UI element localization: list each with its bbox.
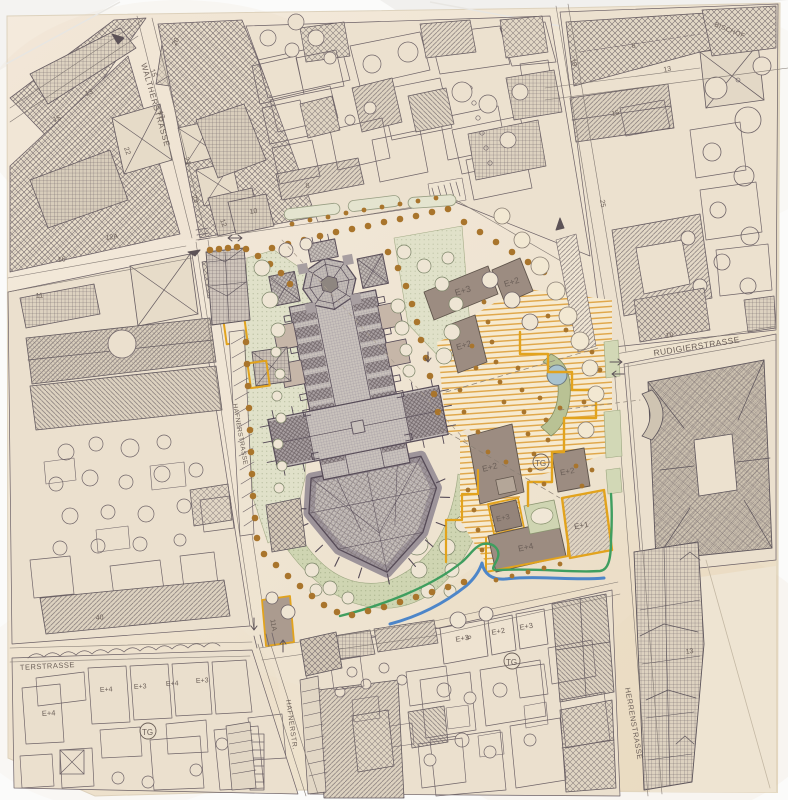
svg-text:40: 40 (95, 614, 104, 622)
svg-text:E+3: E+3 (134, 683, 147, 691)
svg-text:E+3: E+3 (196, 677, 209, 685)
svg-text:TG: TG (506, 658, 517, 667)
svg-text:E+4: E+4 (42, 708, 56, 718)
svg-text:11: 11 (36, 292, 44, 300)
svg-text:13: 13 (685, 648, 694, 656)
svg-text:10: 10 (665, 332, 674, 340)
svg-text:TG: TG (142, 728, 153, 737)
svg-text:E+4: E+4 (166, 680, 179, 688)
svg-text:TG: TG (535, 459, 546, 468)
svg-text:E+4: E+4 (100, 686, 113, 694)
svg-text:10: 10 (249, 208, 258, 216)
svg-text:25: 25 (598, 199, 606, 208)
svg-text:16: 16 (57, 256, 66, 264)
